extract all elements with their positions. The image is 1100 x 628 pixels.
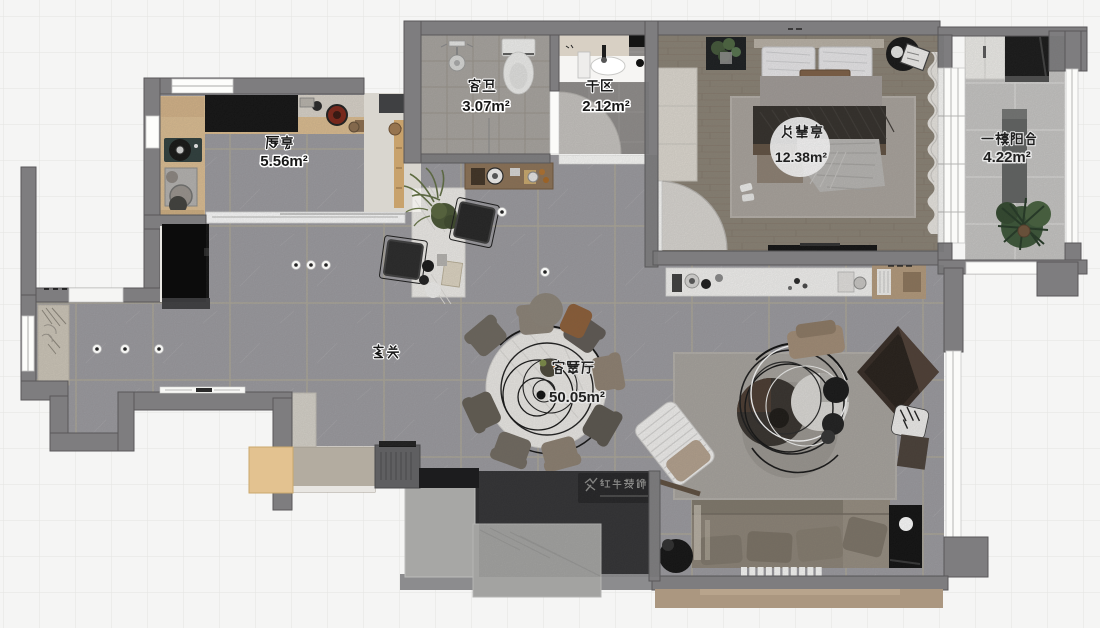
svg-text:5.56m²: 5.56m² xyxy=(260,153,308,170)
svg-text:2.12m²: 2.12m² xyxy=(582,98,630,115)
svg-text:3.07m²: 3.07m² xyxy=(462,98,510,115)
